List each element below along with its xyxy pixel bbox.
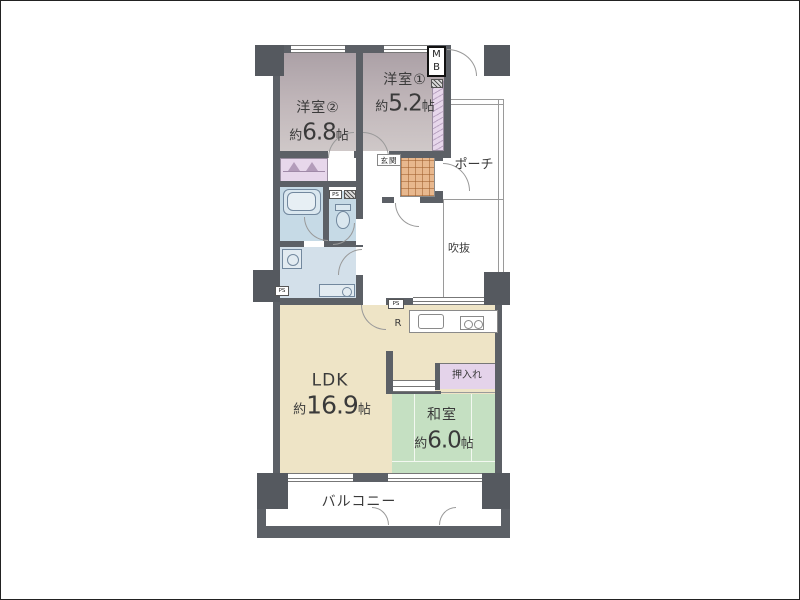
- entrance-label-box: 玄関: [377, 154, 401, 166]
- vanity-sink-icon: [319, 284, 355, 297]
- meter-box-label: MB: [431, 49, 442, 74]
- approx-prefix: 約: [289, 129, 302, 144]
- pipe-space-label: PS: [332, 192, 339, 198]
- balcony-partition-arc: [439, 507, 456, 525]
- bedroom1-name-label: 洋室①: [383, 73, 427, 87]
- refrigerator-label: R: [395, 319, 402, 329]
- entrance-label: 玄関: [381, 155, 398, 166]
- hall-door-arc: [395, 203, 419, 227]
- approx-prefix: 約: [414, 437, 427, 452]
- area-value: 6.0: [427, 428, 461, 454]
- washing-machine-icon: [282, 249, 302, 269]
- ldk-tatami-sliding-door: [393, 380, 435, 392]
- area-value: 16.9: [306, 391, 358, 420]
- duct-hatch: [431, 79, 443, 88]
- bedroom2-name-label: 洋室②: [296, 101, 340, 115]
- oshiire-label: 押入れ: [452, 371, 482, 381]
- oshiire-bottom-line: [441, 392, 495, 393]
- wall-bath-top: [273, 181, 356, 187]
- balcony-wall-bottom: [257, 526, 510, 538]
- toilet-door-gap: [356, 219, 363, 245]
- wall-washroom-bottom: [273, 298, 363, 305]
- pipe-space-box-left: PS: [275, 286, 289, 296]
- area-value: 6.8: [302, 120, 336, 146]
- area-unit: 帖: [461, 437, 474, 452]
- kitchen-sink-icon: [418, 314, 444, 329]
- approx-prefix: 約: [375, 100, 388, 115]
- tatami-balcony-window: [388, 473, 484, 482]
- area-unit: 帖: [422, 100, 435, 115]
- porch-boundary-line: [450, 104, 504, 105]
- wall-ldk-tatami-divider: [386, 351, 393, 394]
- bedroom1-window: [384, 45, 429, 53]
- bedroom1-area-label: 約5.2帖: [375, 93, 435, 116]
- ldk-name-label: LDK: [312, 373, 349, 390]
- bedroom2-area-label: 約6.8帖: [289, 122, 349, 145]
- toilet-bowl-icon: [336, 211, 350, 229]
- pipe-space-label: PS: [279, 288, 286, 294]
- duct-hatch: [344, 190, 356, 199]
- balcony-label: バルコニー: [322, 495, 397, 509]
- burner-icon: [464, 320, 473, 329]
- entrance-tile-floor: [400, 153, 435, 197]
- tatami-line: [392, 461, 495, 462]
- bathtub-icon: [283, 189, 321, 215]
- ldk-area-label: 約16.9帖: [293, 393, 371, 418]
- pipe-space-label: PS: [393, 301, 400, 307]
- void-boundary-line: [443, 199, 504, 200]
- bathtub-inner: [287, 192, 316, 211]
- burner-icon: [474, 320, 483, 329]
- stove-icon: [460, 316, 484, 330]
- vanity-basin: [342, 287, 352, 297]
- bedroom2-window: [291, 45, 345, 53]
- pillar: [484, 272, 510, 305]
- approx-prefix: 約: [293, 403, 306, 418]
- closet-rod: [283, 171, 325, 172]
- japanese-room-area-label: 約6.0帖: [414, 430, 474, 453]
- wall-oshiire-left: [435, 363, 440, 390]
- meter-box-door-arc: [447, 49, 477, 76]
- bedroom1-closet-floor: [432, 81, 444, 151]
- pillar: [257, 473, 288, 509]
- porch-boundary-line: [450, 99, 504, 100]
- porch-label: ポーチ: [454, 159, 493, 172]
- void-label: 吹抜: [448, 243, 470, 254]
- wall-bedroom-divider: [356, 45, 363, 158]
- floor-plan-page: MB PS PS PS 玄関 洋室② 約6.8帖 洋室① 約5.2帖 LDK 約…: [0, 0, 800, 600]
- front-door-gap: [435, 161, 443, 191]
- pillar: [484, 45, 510, 76]
- pipe-space-box-kitchen: PS: [388, 299, 404, 309]
- outer-boundary-line: [498, 99, 499, 301]
- pillar: [482, 473, 510, 509]
- balcony-wall-right: [501, 509, 510, 538]
- area-unit: 帖: [358, 403, 371, 418]
- ldk-balcony-window: [285, 473, 353, 482]
- japanese-room-name-label: 和室: [427, 408, 457, 422]
- meter-box: MB: [427, 46, 446, 77]
- wall-left: [273, 45, 280, 473]
- pillar: [255, 45, 284, 76]
- outer-boundary-line: [503, 99, 504, 301]
- area-value: 5.2: [388, 91, 422, 117]
- toilet-icon: [335, 204, 351, 211]
- area-unit: 帖: [336, 129, 349, 144]
- hanger-icon: [306, 162, 318, 171]
- bathroom-door-gap: [304, 241, 324, 247]
- hanger-icon: [288, 162, 300, 171]
- void-boundary-line: [443, 199, 444, 300]
- washing-machine-drum: [287, 254, 299, 266]
- pipe-space-box-toilet: PS: [329, 190, 342, 199]
